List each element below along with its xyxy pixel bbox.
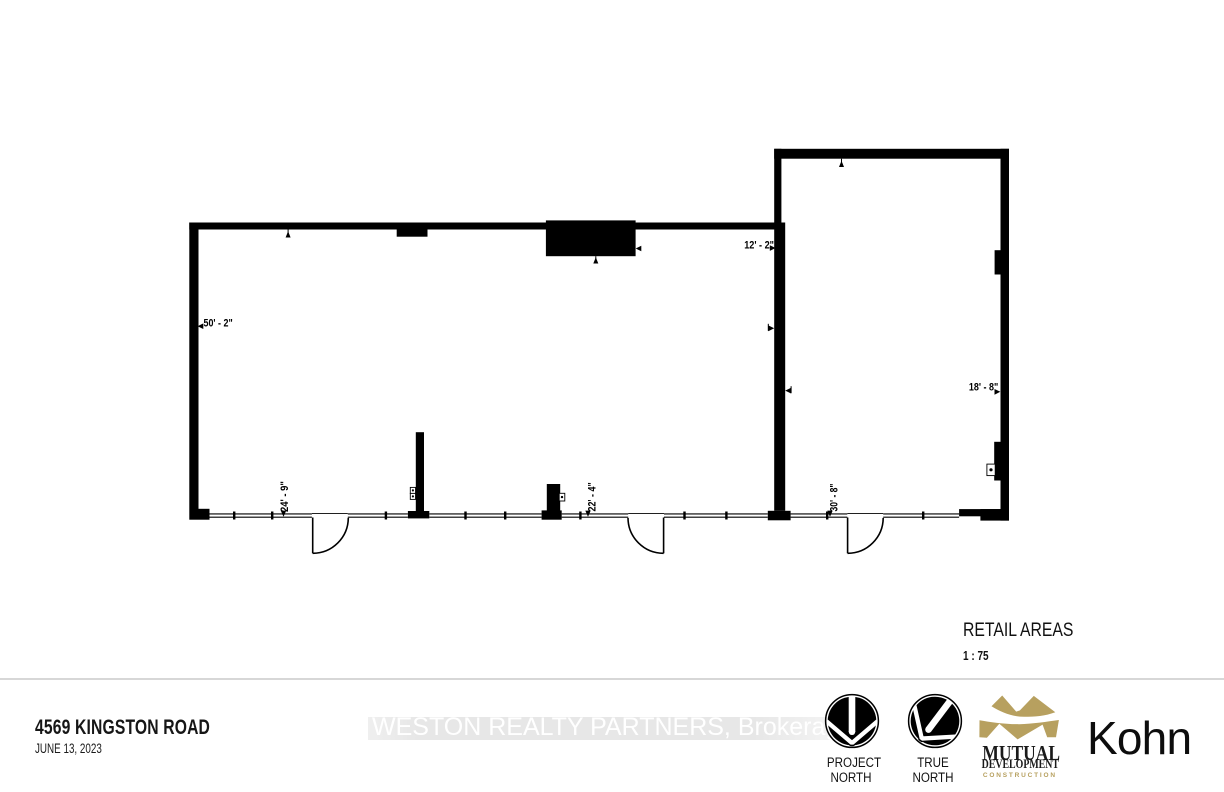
svg-text:24' - 9": 24' - 9" [279, 481, 291, 512]
svg-text:12' - 2": 12' - 2" [744, 239, 774, 251]
svg-text:22' - 4": 22' - 4" [586, 482, 598, 511]
svg-text:50' - 2": 50' - 2" [204, 318, 233, 330]
svg-text:30' - 8": 30' - 8" [828, 484, 840, 512]
svg-text:18' - 8": 18' - 8" [969, 381, 998, 393]
